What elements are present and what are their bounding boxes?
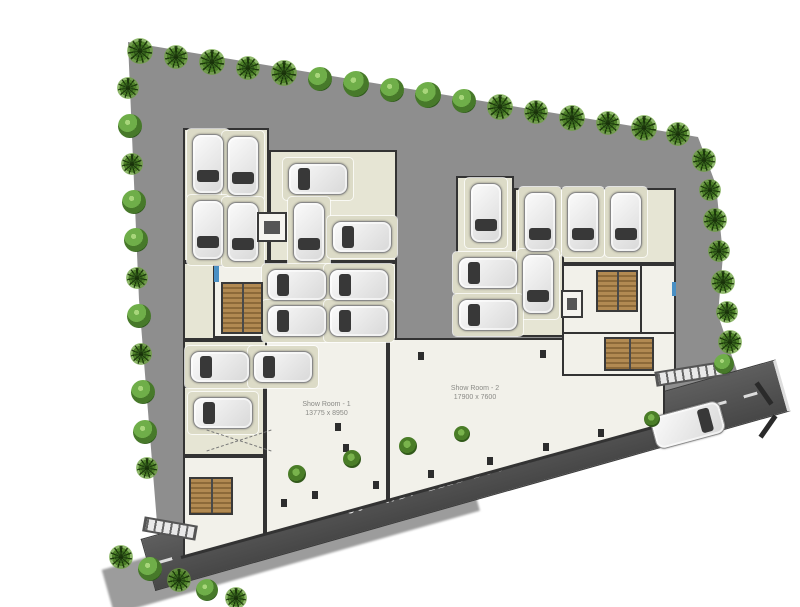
showroom-2-name: Show Room - 2 bbox=[410, 384, 540, 393]
right-block-middle-bay bbox=[518, 252, 564, 337]
showroom-2-dimensions: 17900 x 7600 bbox=[410, 393, 540, 402]
right-block-left-column bbox=[454, 256, 518, 336]
showroom-1-area: Show Room - 1 13775 x 8950 bbox=[265, 338, 388, 540]
left-block-parking-b bbox=[269, 150, 397, 262]
left-block-corridor bbox=[183, 386, 265, 456]
left-block-parking-a bbox=[183, 128, 269, 262]
left-block-stair-room bbox=[213, 264, 267, 338]
showroom-1-dimensions: 13775 x 8950 bbox=[267, 409, 386, 418]
showroom-1-name: Show Room - 1 bbox=[267, 400, 386, 409]
site-plan-canvas: 30'- WD. -211B BUS ROAD Show Room - 1 13… bbox=[0, 0, 800, 607]
interior-wall bbox=[640, 266, 642, 332]
interior-wall bbox=[564, 332, 674, 334]
right-block-stair-section bbox=[562, 264, 676, 376]
buildings: Show Room - 1 13775 x 8950 Show Room - 2… bbox=[0, 0, 800, 607]
right-block-tall-bay bbox=[456, 176, 514, 256]
showroom-2-label: Show Room - 2 17900 x 7600 bbox=[410, 384, 540, 402]
showroom-1-label: Show Room - 1 13775 x 8950 bbox=[267, 400, 386, 418]
